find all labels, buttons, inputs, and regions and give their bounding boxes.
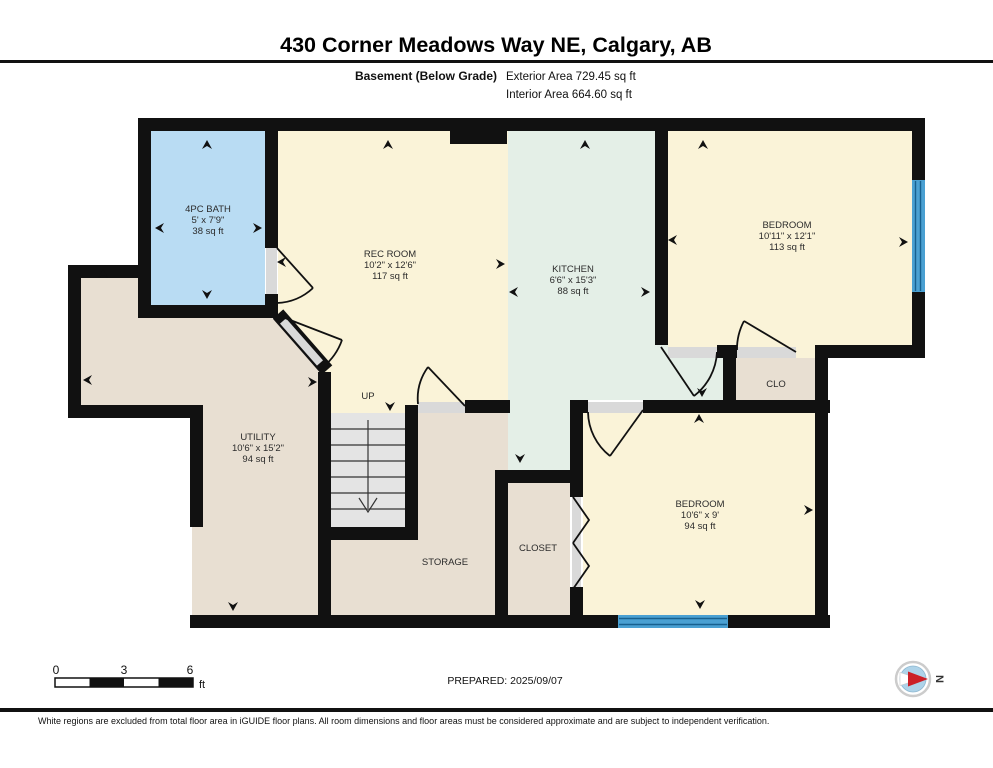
bedroom2-name: BEDROOM — [675, 499, 724, 510]
bedroom2-area: 94 sq ft — [684, 521, 716, 532]
utility-area: 94 sq ft — [242, 454, 274, 465]
storage-name: STORAGE — [422, 557, 468, 568]
kitchen-area: 88 sq ft — [557, 286, 589, 297]
header-divider — [0, 60, 993, 63]
bedroom2-dims: 10'6" x 9' — [681, 510, 719, 521]
bedroom1-name: BEDROOM — [762, 220, 811, 231]
rec-name: REC ROOM — [364, 249, 416, 260]
stairs-up-label: UP — [361, 391, 374, 402]
exterior-area-label: Exterior Area 729.45 sq ft — [506, 71, 637, 83]
prepared-date: PREPARED: 2025/09/07 — [447, 675, 563, 687]
compass-north-label: N — [933, 675, 945, 683]
floor-plan-page: 430 Corner Meadows Way NE, Calgary, AB B… — [0, 0, 993, 768]
bedroom1-window — [912, 180, 925, 292]
utility-dims: 10'6" x 15'2" — [232, 443, 284, 454]
scale-3: 3 — [121, 663, 128, 677]
rec-area: 117 sq ft — [372, 271, 408, 282]
scale-unit: ft — [199, 679, 205, 691]
bath-dims: 5' x 7'9" — [192, 215, 225, 226]
bedroom1-area: 113 sq ft — [769, 242, 805, 253]
interior-area-label: Interior Area 664.60 sq ft — [506, 89, 633, 101]
bath-area: 38 sq ft — [192, 226, 224, 237]
bedroom1-dims: 10'11" x 12'1" — [759, 231, 816, 242]
bath-name: 4PC BATH — [185, 204, 231, 215]
floor-label: Basement (Below Grade) — [355, 69, 497, 83]
footer-divider — [0, 708, 993, 712]
page-title: 430 Corner Meadows Way NE, Calgary, AB — [280, 33, 712, 57]
rec-dims: 10'2" x 12'6" — [364, 260, 416, 271]
utility-name: UTILITY — [240, 432, 276, 443]
kitchen-dims: 6'6" x 15'3" — [550, 275, 597, 286]
compass-icon: N — [896, 662, 945, 696]
kitchen-name: KITCHEN — [552, 264, 594, 275]
floor-plan-canvas: 430 Corner Meadows Way NE, Calgary, AB B… — [0, 0, 993, 768]
bedroom2-window — [618, 615, 728, 628]
closet-name: CLOSET — [519, 543, 557, 554]
footer-disclaimer: White regions are excluded from total fl… — [38, 716, 769, 726]
clo-name: CLO — [766, 379, 786, 390]
scale-6: 6 — [187, 663, 194, 677]
stairs — [331, 413, 405, 527]
scale-bar: 0 3 6 ft — [53, 663, 205, 691]
scale-0: 0 — [53, 663, 60, 677]
